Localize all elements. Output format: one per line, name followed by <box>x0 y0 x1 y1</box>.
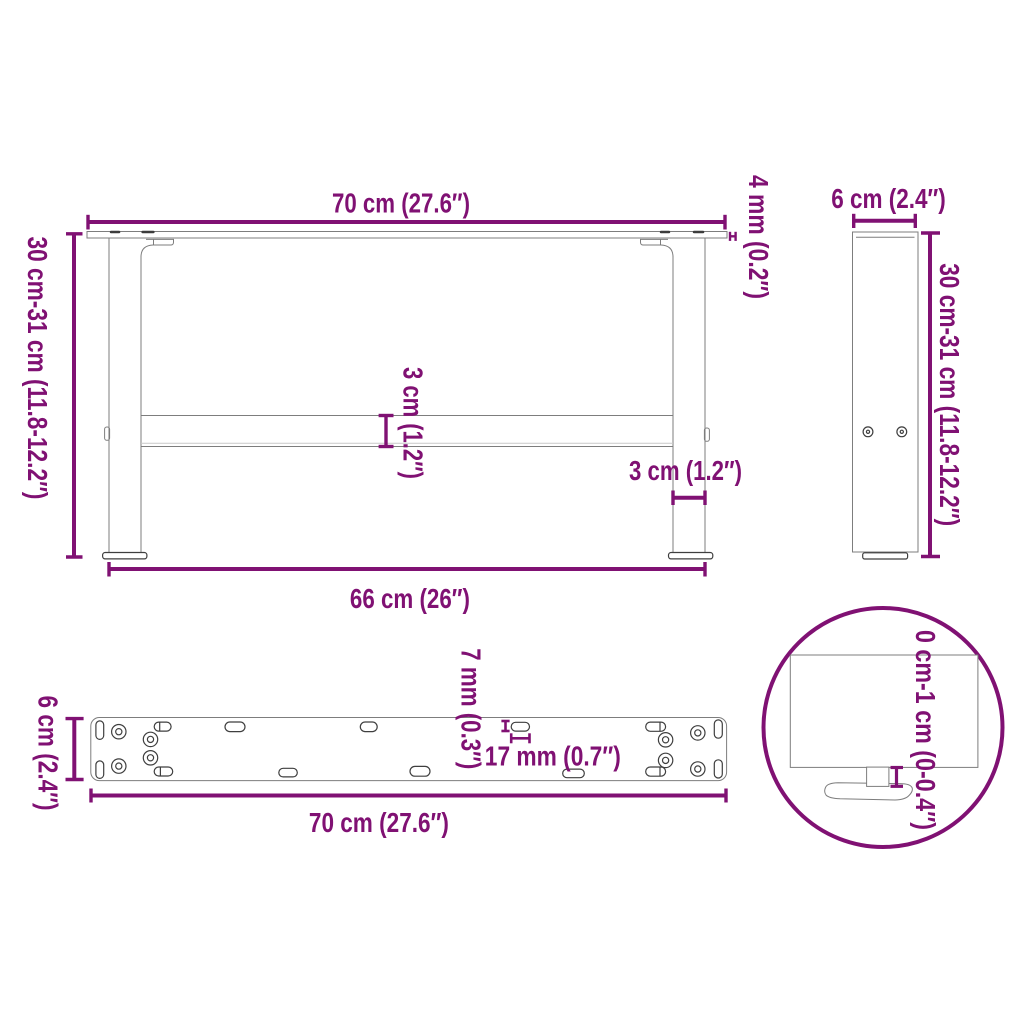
svg-text:3 cm (1.2″): 3 cm (1.2″) <box>629 455 742 486</box>
svg-text:70 cm (27.6″): 70 cm (27.6″) <box>332 188 470 219</box>
svg-text:4 mm (0.2″): 4 mm (0.2″) <box>743 175 774 299</box>
svg-text:3 cm (1.2″): 3 cm (1.2″) <box>398 367 429 479</box>
svg-text:6 cm (2.4″): 6 cm (2.4″) <box>831 183 946 214</box>
svg-text:30 cm-31 cm (11.8-12.2″): 30 cm-31 cm (11.8-12.2″) <box>22 237 53 500</box>
svg-text:7 mm (0.3″): 7 mm (0.3″) <box>456 648 487 769</box>
svg-text:30 cm-31 cm (11.8-12.2″): 30 cm-31 cm (11.8-12.2″) <box>934 263 965 526</box>
svg-text:6 cm (2.4″): 6 cm (2.4″) <box>33 696 64 811</box>
svg-text:70 cm (27.6″): 70 cm (27.6″) <box>309 807 449 838</box>
svg-text:66 cm (26″): 66 cm (26″) <box>350 583 470 614</box>
svg-text:17 mm (0.7″): 17 mm (0.7″) <box>485 741 621 772</box>
svg-text:0 cm-1 cm (0-0.4″): 0 cm-1 cm (0-0.4″) <box>910 630 941 830</box>
